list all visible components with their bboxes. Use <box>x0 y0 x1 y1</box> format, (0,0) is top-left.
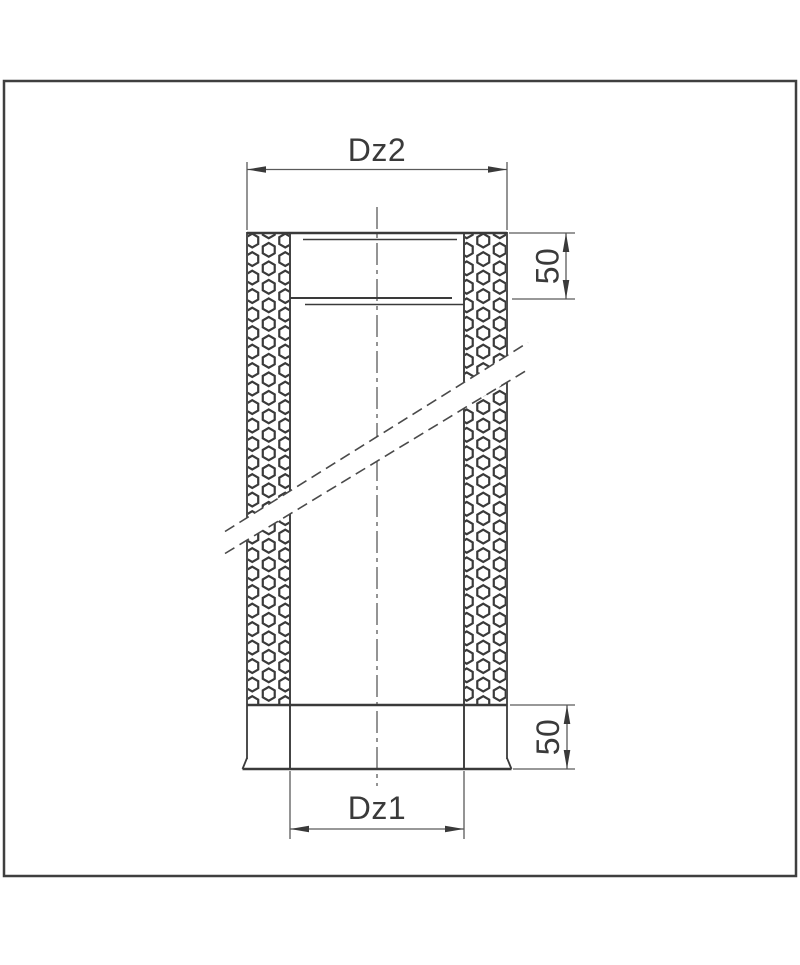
pipe-section-drawing: Dz2 50 50 Dz1 <box>0 0 800 960</box>
dz2-label: Dz2 <box>348 132 406 168</box>
dz1-label: Dz1 <box>348 790 406 826</box>
drawing-canvas: Dz2 50 50 Dz1 <box>0 0 800 960</box>
exposed-end-label: 50 <box>530 719 566 756</box>
socket-depth-label: 50 <box>530 248 566 285</box>
insulation-right <box>465 233 506 704</box>
insulation-left <box>248 233 289 704</box>
drawing-frame <box>4 81 796 876</box>
